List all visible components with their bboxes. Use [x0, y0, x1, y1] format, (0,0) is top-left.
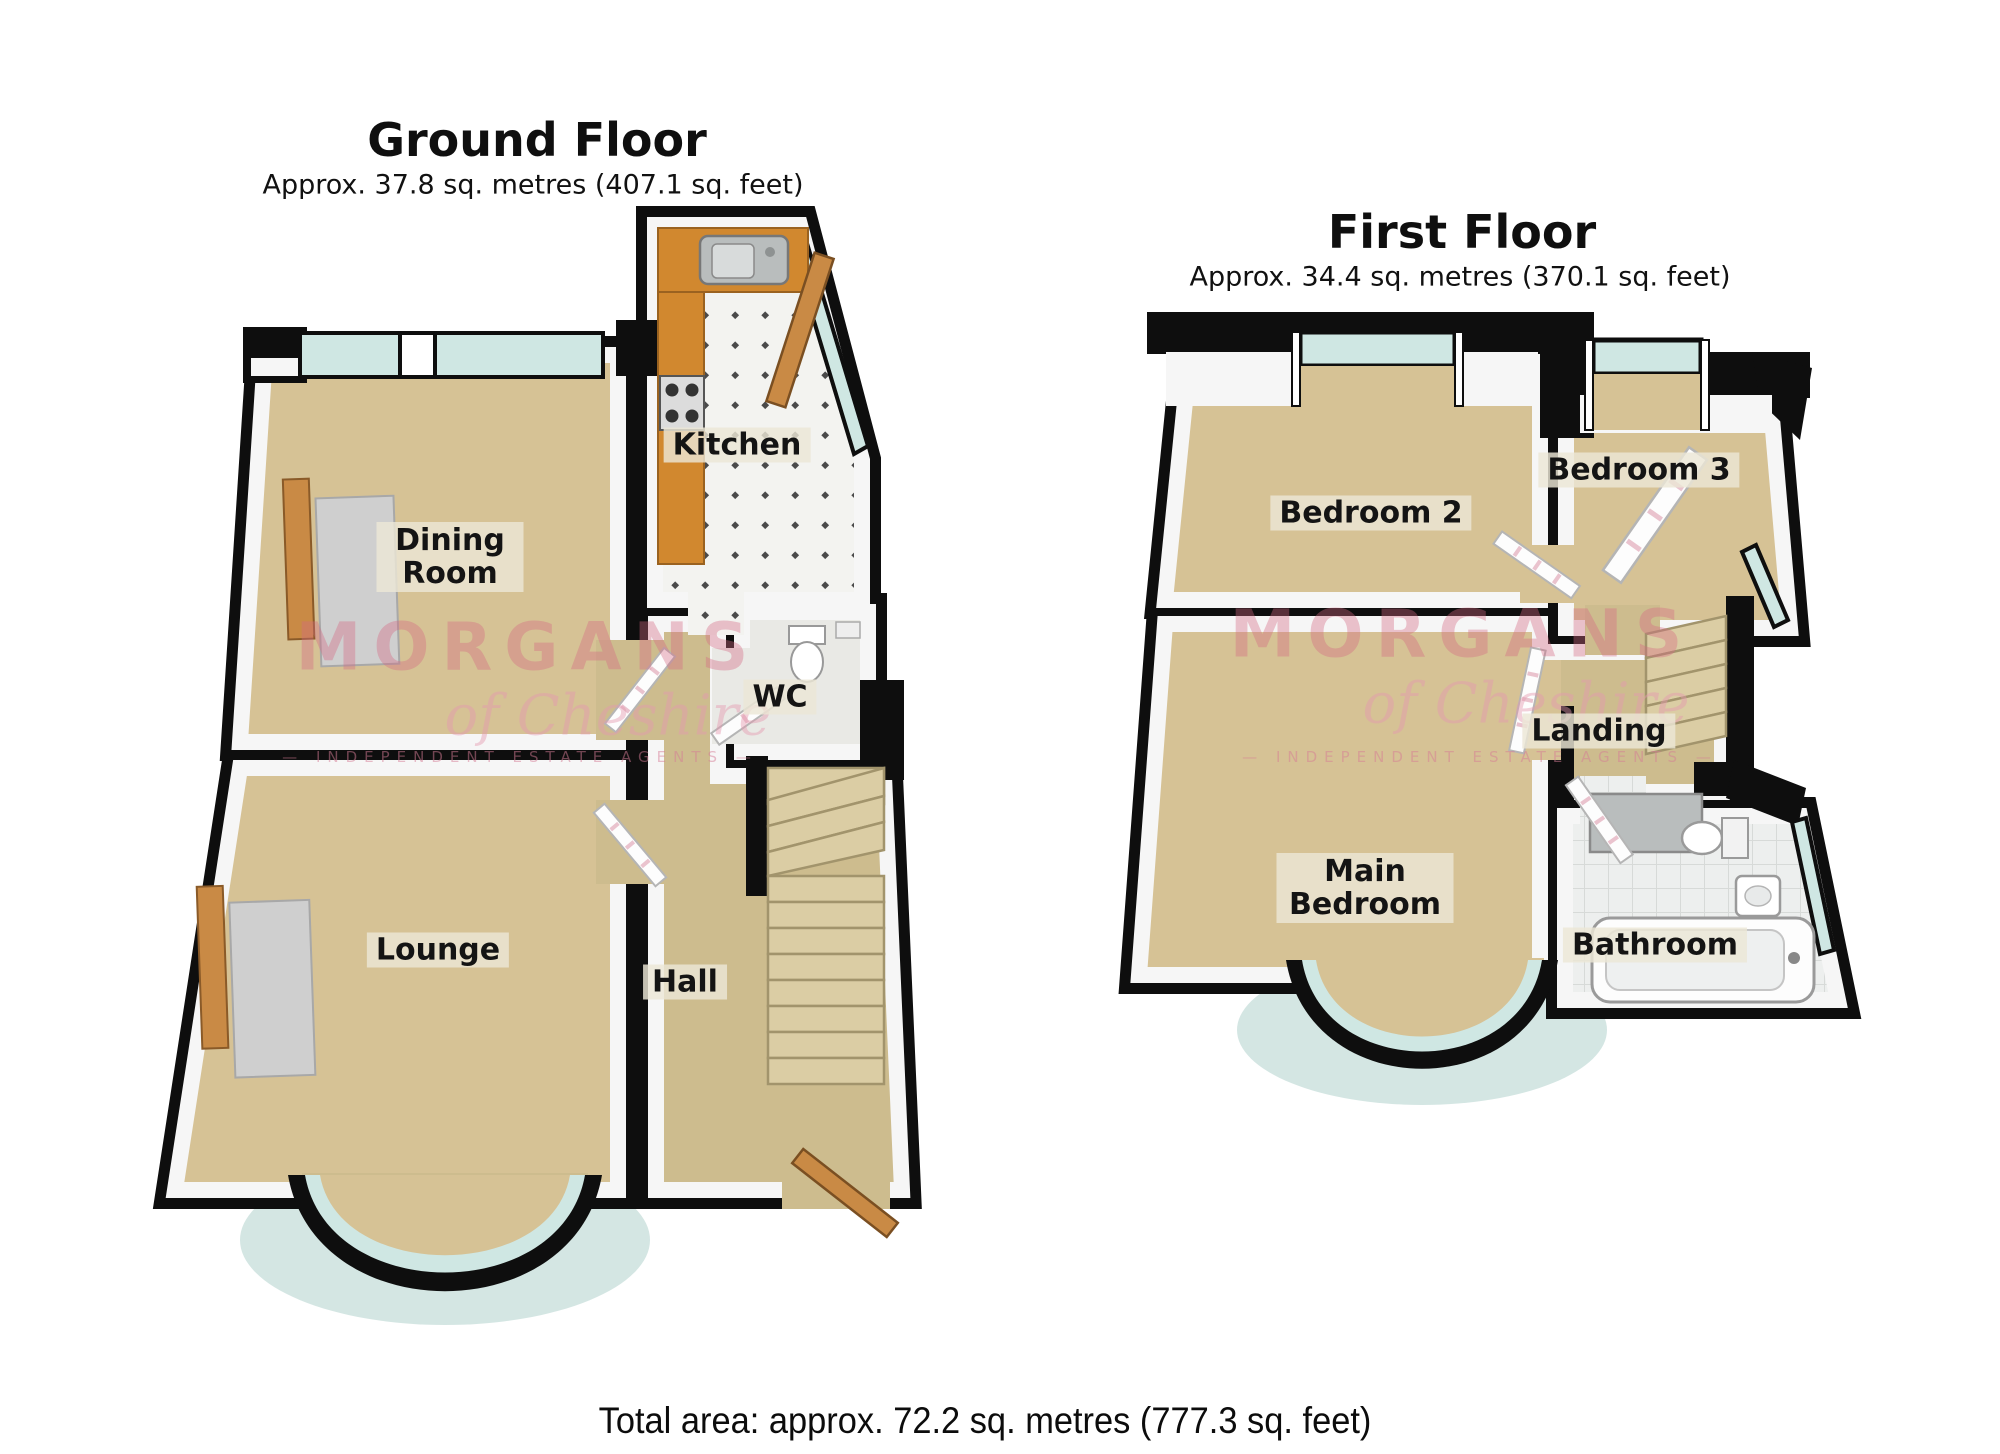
sink-bowl — [712, 244, 754, 278]
room-label-bedroom3: Bedroom 3 — [1538, 453, 1739, 488]
first-floor-subtitle: Approx. 34.4 sq. metres (370.1 sq. feet) — [1189, 262, 1730, 293]
sink-tap — [765, 247, 775, 257]
first-floor-title: First Floor — [1328, 205, 1596, 259]
bath-tap — [1788, 952, 1800, 964]
floorplan-page: MORGANS of Cheshire — INDEPENDENT ESTATE… — [0, 0, 2000, 1454]
room-label-bathroom: Bathroom — [1563, 928, 1747, 963]
ground-floor-title: Ground Floor — [367, 113, 707, 167]
room-label-landing: Landing — [1522, 714, 1675, 749]
window-reveal — [1292, 332, 1300, 406]
wc-toilet — [791, 642, 823, 682]
floorplan-artwork — [0, 0, 2000, 1454]
dining-sideboard — [283, 479, 315, 640]
ground-floor-subtitle: Approx. 37.8 sq. metres (407.1 sq. feet) — [262, 170, 803, 201]
wc-basin — [836, 622, 860, 638]
toilet-cistern — [1722, 818, 1748, 858]
hob-burner — [666, 384, 679, 397]
hob-burner — [686, 384, 699, 397]
stair-wall — [746, 756, 768, 896]
room-label-wc: WC — [743, 680, 816, 715]
window-pier — [400, 333, 435, 377]
bedroom3-window — [1585, 340, 1709, 430]
hob-burner — [686, 410, 699, 423]
window-reveal — [1455, 332, 1463, 406]
basin-bowl — [1745, 886, 1771, 906]
room-label-lounge: Lounge — [367, 933, 509, 968]
dining-window — [300, 333, 400, 377]
room-label-hall: Hall — [643, 965, 727, 1000]
toilet — [1682, 822, 1722, 854]
dining-window — [435, 333, 603, 377]
ground-floor-plan — [175, 225, 904, 1325]
stairwell-wall — [1726, 596, 1754, 782]
chimney-face — [251, 358, 299, 376]
hob-burner — [666, 410, 679, 423]
first-floor-plan — [1139, 312, 1838, 1105]
lounge-sideboard — [197, 886, 229, 1049]
window-recess-floor — [1301, 366, 1454, 406]
window-reveal — [1585, 340, 1593, 430]
total-area-text: Total area: approx. 72.2 sq. metres (777… — [599, 1400, 1372, 1442]
window-recess-floor — [1594, 374, 1700, 430]
window-glass — [1593, 340, 1701, 374]
room-label-bedroom2: Bedroom 2 — [1270, 496, 1471, 531]
lounge-rug — [229, 900, 315, 1078]
room-label-main-bedroom: Main Bedroom — [1277, 853, 1454, 923]
kitchen-doorway — [688, 585, 744, 635]
hob — [660, 376, 704, 430]
wall-patch — [860, 680, 904, 780]
window-glass — [1300, 332, 1455, 366]
bedroom2-window — [1292, 332, 1463, 406]
room-label-kitchen: Kitchen — [664, 428, 811, 463]
room-label-dining-room: Dining Room — [377, 522, 524, 592]
window-reveal — [1701, 340, 1709, 430]
